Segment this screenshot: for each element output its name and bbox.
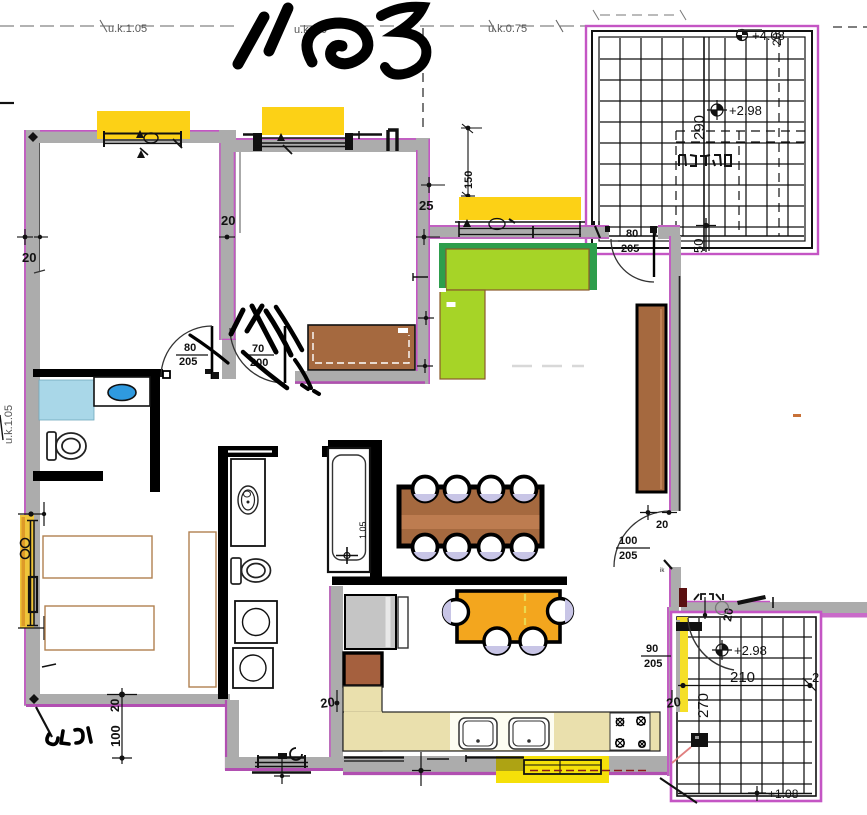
svg-text:100: 100 bbox=[619, 535, 637, 547]
svg-text:150: 150 bbox=[463, 171, 475, 189]
svg-text:25: 25 bbox=[419, 198, 433, 213]
svg-text:90: 90 bbox=[646, 643, 658, 655]
svg-text:20: 20 bbox=[108, 698, 122, 712]
svg-text:u.k.0.75: u.k.0.75 bbox=[488, 23, 527, 35]
svg-text:205: 205 bbox=[644, 658, 662, 670]
svg-text:2: 2 bbox=[812, 670, 819, 685]
svg-text:290: 290 bbox=[691, 115, 708, 140]
svg-text:270: 270 bbox=[695, 693, 712, 718]
svg-text:20: 20 bbox=[319, 694, 335, 711]
svg-text:20: 20 bbox=[665, 694, 681, 711]
svg-text:+2.98: +2.98 bbox=[729, 103, 762, 118]
svg-text:205: 205 bbox=[621, 243, 639, 255]
svg-text:70: 70 bbox=[252, 343, 264, 355]
svg-text:20: 20 bbox=[656, 519, 668, 531]
svg-text:205: 205 bbox=[619, 550, 637, 562]
svg-text:+2.98: +2.98 bbox=[734, 643, 767, 658]
svg-text:u.k.1.05: u.k.1.05 bbox=[3, 405, 15, 444]
svg-text:80: 80 bbox=[184, 342, 196, 354]
svg-text:20: 20 bbox=[770, 32, 784, 46]
svg-text:100: 100 bbox=[108, 725, 123, 747]
svg-text:210: 210 bbox=[730, 669, 755, 686]
svg-text:20: 20 bbox=[22, 250, 36, 265]
svg-text:50: 50 bbox=[691, 239, 706, 253]
svg-text:u.k.1.05: u.k.1.05 bbox=[108, 23, 147, 35]
svg-text:+1.08: +1.08 bbox=[768, 787, 799, 801]
svg-text:1.05: 1.05 bbox=[358, 521, 368, 539]
svg-text:80: 80 bbox=[626, 228, 638, 240]
svg-text:20: 20 bbox=[221, 213, 235, 228]
svg-text:205: 205 bbox=[179, 356, 197, 368]
